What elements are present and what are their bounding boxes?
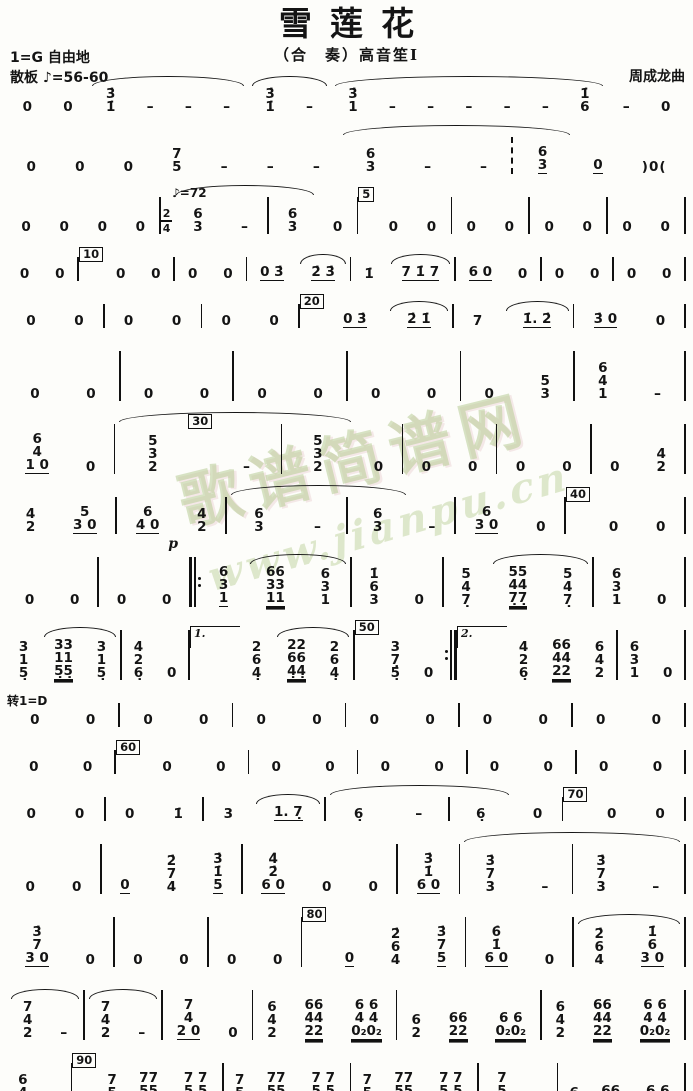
rest: 0: [318, 221, 356, 234]
rest: 0: [530, 221, 568, 234]
rest: 0: [542, 268, 577, 281]
slur-group: 22664̣4̣264̣: [273, 639, 353, 680]
note-stack: 7 75 50₄0₄: [297, 1072, 350, 1091]
note-stack: 641 0: [7, 433, 67, 474]
note-stack: 663311: [248, 566, 303, 607]
barline: [684, 257, 686, 281]
note-stack: 0 3̇: [324, 313, 386, 328]
note-stack: 55447̣7̣: [491, 566, 546, 607]
note-stack: 1̇: [154, 808, 202, 821]
barline: [684, 497, 686, 534]
note-stack: 63: [348, 508, 408, 534]
note-stack: 64: [558, 1087, 590, 1091]
notation-system: 4253 064 0p4263–63–63 004000: [0, 482, 693, 536]
note-stack: 6 60₂0₂: [482, 1012, 541, 1040]
slur-group: 3̇1̇–––: [88, 88, 247, 114]
notation-system: 00075–––63––630)0(: [0, 122, 693, 176]
rest: 0: [140, 761, 194, 774]
note-stack: 315̣: [7, 641, 40, 680]
measure-number-box: 80: [302, 907, 326, 922]
rest: 0: [649, 268, 684, 281]
note-stack: 631: [303, 568, 348, 607]
slur-group: 1̇. 2̇: [502, 313, 573, 328]
rest: 0: [249, 761, 303, 774]
rest: 0: [202, 315, 250, 328]
rest: 0: [568, 221, 606, 234]
rest: 0: [138, 268, 173, 281]
rest: 0: [577, 268, 612, 281]
note-stack: 3̇1: [333, 88, 374, 114]
rest: 0: [54, 881, 101, 894]
measure-number-box: 60: [116, 740, 140, 755]
rest: 0: [104, 161, 153, 174]
score-body: 003̇1̇–––3̇1̇–3̇1–––––1̇6–000075–––63––6…: [0, 65, 693, 1091]
rest: 0: [176, 714, 232, 727]
rest: 0: [517, 521, 564, 534]
rest: 0: [234, 388, 290, 401]
notation-system: 742–742–742 006426644226 64 40₂0₂6266226…: [0, 975, 693, 1042]
rest: 0: [7, 161, 56, 174]
note-stack: 742 0: [163, 999, 214, 1040]
slur-group: 63–63: [227, 497, 409, 534]
rest: 0: [468, 761, 522, 774]
rest: 0: [115, 954, 161, 967]
rest: 0: [194, 761, 248, 774]
measure-number-box: 5: [358, 187, 374, 202]
rest: 0: [289, 714, 345, 727]
rest: 0: [631, 761, 685, 774]
barline: [684, 797, 686, 821]
slur-group: 742–: [85, 1001, 161, 1040]
note-stack: 631: [618, 641, 651, 680]
barline: [684, 630, 686, 680]
rest: 0: [153, 315, 201, 328]
note-stack: 264̣: [318, 641, 351, 680]
rest: 0: [48, 101, 89, 114]
barline: [301, 917, 303, 967]
rest: 0: [63, 388, 119, 401]
rest: 0: [67, 954, 113, 967]
note-stack: 2̇ 3̇: [298, 266, 347, 281]
rest: 0: [303, 881, 350, 894]
dash-continuation: –: [400, 161, 456, 174]
rest: 0: [105, 315, 153, 328]
dash-continuation: –: [373, 101, 411, 114]
note-stack: 6̣: [450, 808, 511, 821]
barline: [684, 990, 686, 1040]
note-stack: 775533: [383, 1072, 424, 1091]
rest: 0: [120, 714, 176, 727]
dash-continuation: –: [201, 161, 247, 174]
dash-continuation: –: [456, 161, 512, 174]
rest: 0: [42, 268, 77, 281]
notation-system: 000024♪=7263–630500000000: [0, 182, 693, 236]
dash-continuation: –: [212, 461, 280, 474]
notation-system: 3̇73 0000008002̇643̇756̇1̇6 002̇641̇63 0: [0, 902, 693, 969]
note-stack: 4̇2̇6 0: [243, 853, 304, 894]
rest: 0: [144, 594, 189, 607]
rest: 0: [7, 388, 63, 401]
note-stack: 775533: [128, 1072, 169, 1091]
dash-continuation: –: [389, 808, 448, 821]
dash-continuation: –: [46, 1027, 81, 1040]
barline: [357, 197, 359, 234]
rest: 0: [61, 761, 115, 774]
slur-group: 7 1̇ 7: [387, 266, 454, 281]
barline: [684, 917, 686, 967]
dash-continuation: –: [222, 221, 267, 234]
note-stack: 2̇ 1̇: [388, 313, 450, 328]
note-stack: 6644: [590, 1085, 631, 1091]
rest: 0: [374, 221, 412, 234]
note-stack: 6 60₄0₄: [631, 1085, 684, 1091]
rest: 0: [7, 315, 55, 328]
rest: 0: [7, 594, 52, 607]
measure-number-box: 30: [188, 414, 212, 429]
measure-number-box: 50: [355, 620, 379, 635]
note-stack: 7 75 50₃0₃: [169, 1072, 222, 1091]
note-stack: 664422: [579, 999, 626, 1040]
barline: [684, 750, 686, 774]
note-stack: 664422: [291, 999, 338, 1040]
barline: [564, 497, 566, 534]
rest: 0: [250, 315, 298, 328]
rest: 0: [587, 808, 635, 821]
rest: 0: [102, 879, 149, 894]
note-stack: 63: [229, 508, 289, 534]
rest: 0: [629, 714, 685, 727]
rest: 0: [403, 461, 449, 474]
dash-continuation: –: [207, 101, 245, 114]
rest: 0: [505, 268, 540, 281]
slur-group: 33115̣5̣315̣: [40, 639, 120, 680]
dash-continuation: –: [247, 161, 293, 174]
repeat-end-barline: [445, 630, 457, 680]
rest: 0: [461, 388, 517, 401]
note-stack: 532: [117, 435, 188, 474]
rest: 0: [412, 761, 466, 774]
note-stack: 426̣: [122, 641, 155, 680]
rest: 0: [83, 221, 121, 234]
rest: 0: [177, 388, 233, 401]
rest: 0: [106, 808, 154, 821]
note-stack: 1̇. 2̇: [504, 313, 571, 328]
note-stack: 6622: [435, 1012, 482, 1040]
rest: 0: [7, 268, 42, 281]
rest: 0: [350, 881, 397, 894]
slur-group: 2̇641̇63 0: [574, 926, 684, 967]
slur-group: 663311631: [246, 566, 350, 607]
slur-group: 2̇ 3̇: [296, 266, 349, 281]
note-stack: 547̣: [444, 568, 489, 607]
note-stack: 3̇ 0: [574, 313, 636, 328]
score-header: 雪莲花 （合 奏）高音笙Ⅰ 1=G 自由地 散板 ♪=56-60 周成龙曲: [0, 0, 693, 65]
rest: 0: [326, 952, 372, 967]
rest: 0: [402, 714, 458, 727]
rest: 0: [121, 388, 177, 401]
note-stack: 642: [583, 641, 616, 680]
rest: 0: [209, 954, 255, 967]
rest: 0: [515, 714, 571, 727]
dash-continuation: –: [410, 521, 455, 534]
note-stack: 631: [594, 568, 639, 607]
rest: 0: [155, 667, 188, 680]
note-stack: 63: [174, 208, 222, 234]
notation-system: 0002̇743̇1̇54̇2̇6 0003̇1̇6 03̇73–3̇73–: [0, 829, 693, 896]
rest: 0: [214, 1027, 251, 1040]
rest: 0: [7, 101, 48, 114]
barline: [684, 1063, 686, 1091]
note-stack: 3̇1̇5: [195, 853, 242, 894]
rest: 0: [255, 954, 301, 967]
note-stack: 1̇63: [352, 568, 397, 607]
rest: 0: [7, 761, 61, 774]
rest: 0: [103, 268, 138, 281]
barline: [684, 557, 686, 607]
slur-group: 1. 7̣: [252, 806, 324, 821]
note-stack: 631: [201, 566, 246, 607]
rest: 0: [55, 808, 103, 821]
note-stack: 6 64 40₂0₂: [337, 999, 396, 1040]
dash-continuation: –: [488, 101, 526, 114]
note-stack: 62: [397, 1014, 434, 1040]
slur-group: 55447̣7̣547̣: [489, 566, 593, 607]
rest: 0: [7, 221, 45, 234]
rest: 0: [355, 461, 401, 474]
note-stack: 63: [513, 146, 571, 174]
volta-bracket: 1.: [190, 626, 240, 648]
rest: 0: [358, 761, 412, 774]
note-stack: 7 1̇ 7: [389, 266, 452, 281]
rest: 0: [526, 954, 572, 967]
rest: 0: [412, 221, 450, 234]
slur-group: 742–: [7, 1001, 83, 1040]
rest: 0: [544, 461, 590, 474]
dash-continuation: –: [450, 101, 488, 114]
rest: 0: [55, 315, 103, 328]
note-stack: 532: [282, 435, 353, 474]
rest: 0: [346, 714, 402, 727]
note-stack: 42: [638, 448, 684, 474]
note-stack: 753 0: [479, 1072, 525, 1091]
rest: 0: [67, 461, 113, 474]
rest: 0: [573, 714, 629, 727]
measure-number-box: 10: [79, 247, 103, 262]
note-stack: 775544: [256, 1072, 297, 1091]
notation-system: 0001̇31. 7̣6̣–6̣07000: [0, 782, 693, 823]
note-stack: 1̇: [351, 268, 386, 281]
dash-continuation: –: [289, 521, 346, 534]
rest: 0: [161, 954, 207, 967]
dash-continuation: –: [124, 1027, 159, 1040]
note-stack: 7 75 50₃0₃: [424, 1072, 477, 1091]
note-stack: 63: [341, 148, 399, 174]
note-stack: 742: [87, 1001, 124, 1040]
rest: 0: [636, 315, 684, 328]
rest: 0: [63, 714, 119, 727]
dash-continuation: –: [131, 101, 169, 114]
rest: 0: [452, 221, 490, 234]
slur-group: 3̇1̇–: [248, 88, 331, 114]
note-stack: 33115̣5̣: [42, 639, 85, 680]
note-stack: 642: [7, 1074, 39, 1091]
dash-continuation: –: [607, 101, 645, 114]
rest: 0: [651, 667, 684, 680]
rest: 0: [614, 268, 649, 281]
time-signature: 24: [161, 208, 172, 235]
note-stack: 264̣: [240, 641, 273, 680]
note-stack: 53 0: [54, 506, 115, 534]
rest: 0: [590, 521, 637, 534]
dash-continuation: –: [629, 881, 682, 894]
note-stack: 742: [9, 1001, 46, 1040]
rest: 0: [637, 521, 684, 534]
rest: 0: [397, 594, 442, 607]
note-stack: 3̇75: [419, 926, 465, 967]
rest: 0: [348, 388, 404, 401]
note-stack: 642: [542, 1001, 579, 1040]
note-stack: 42: [178, 508, 225, 534]
repeat-start-barline: [189, 557, 201, 607]
note-stack: 547̣: [545, 568, 590, 607]
rest: 0: [577, 761, 631, 774]
slur-group: 53230–532: [115, 424, 355, 474]
rest: 0: [175, 268, 210, 281]
note-stack: 3̇1̇: [250, 88, 291, 114]
note-stack: 315̣: [85, 641, 118, 680]
note-stack: 6 64 40₂0₂: [626, 999, 685, 1040]
dash-continuation: –: [631, 388, 685, 401]
barline: [684, 703, 686, 727]
rest: 0: [45, 221, 83, 234]
notation-system: 转1=D000000000000: [0, 688, 693, 729]
note-stack: 6̣: [328, 808, 389, 821]
notation-system: 001000000 3̇2̇ 3̇1̇7 1̇ 76 000000: [0, 242, 693, 283]
slur-group: 2̇ 1̇: [386, 313, 452, 328]
note-stack: 3̇73: [462, 855, 518, 894]
measure-number-box: 90: [72, 1053, 96, 1068]
note-stack: 53: [517, 375, 573, 401]
dash-continuation: –: [293, 161, 339, 174]
rest: 0: [636, 808, 684, 821]
barline: [353, 630, 355, 680]
rest: 0: [7, 881, 54, 894]
dash-continuation: –: [526, 101, 564, 114]
note-stack: 754: [224, 1074, 256, 1091]
measure-number-box: 40: [566, 487, 590, 502]
note-stack: 642: [253, 1001, 290, 1040]
slur-group: 3̇1–––––1̇6: [331, 88, 608, 114]
notation-system: 00600000000000: [0, 735, 693, 776]
slur-group: 63––63: [339, 137, 573, 174]
dash-continuation: –: [412, 101, 450, 114]
measure-number-box: 20: [300, 294, 324, 309]
rest: 0: [99, 594, 144, 607]
rest: 0: [574, 159, 623, 174]
rest: 0: [412, 667, 445, 680]
volta-bracket: 2.: [457, 626, 507, 648]
note-stack: 664422: [540, 639, 583, 680]
barline: [684, 197, 686, 234]
rest: 0: [646, 221, 684, 234]
note-stack: 3̇73: [573, 855, 629, 894]
note-stack: 3̇73 0: [7, 926, 67, 967]
rest: 0: [645, 101, 686, 114]
rest: 0: [460, 714, 516, 727]
note-stack: 2̇64: [576, 928, 622, 967]
note-stack: 7: [454, 315, 502, 328]
notation-system: 6420907537755337 75 50₃0₃7547755447 75 5…: [0, 1048, 693, 1091]
rest: 0: [497, 461, 543, 474]
notation-system: 000000200 3̇2̇ 1̇71̇. 2̇3̇ 00: [0, 289, 693, 330]
rest: 0: [513, 808, 561, 821]
note-stack: 2̇74: [148, 855, 195, 894]
rest: 0: [52, 594, 97, 607]
note-stack: 42: [7, 508, 54, 534]
note-stack: 641: [575, 362, 631, 401]
note-stack: 753: [351, 1074, 383, 1091]
notation-system: 00006316633116311̇630547̣55447̣7̣547̣631…: [0, 542, 693, 609]
note-stack: 63: [269, 208, 317, 234]
sheet-music-page: 雪莲花 （合 奏）高音笙Ⅰ 1=G 自由地 散板 ♪=56-60 周成龙曲 歌谱…: [0, 0, 693, 1091]
notation-system: 315̣33115̣5̣315̣426̣01.264̣22664̣4̣264̣5…: [0, 615, 693, 682]
dash-continuation: –: [290, 101, 328, 114]
rest: 0: [303, 761, 357, 774]
note-stack: 63 0: [456, 506, 517, 534]
measure-number-box: 70: [563, 787, 587, 802]
rest: 0: [233, 714, 289, 727]
note-stack: 426̣: [507, 641, 540, 680]
rest: 0: [490, 221, 528, 234]
notation-system: 003̇1̇–––3̇1̇–3̇1–––––1̇6–0: [0, 73, 693, 116]
dash-continuation: –: [518, 881, 571, 894]
slur-group: 3̇73–3̇73–: [460, 844, 684, 894]
dash-continuation: –: [169, 101, 207, 114]
note-stack: 75: [153, 148, 202, 174]
rest: 0: [639, 594, 684, 607]
slur-group: 63–63: [172, 197, 318, 234]
rest: 0: [7, 808, 55, 821]
rest: 0: [404, 388, 460, 401]
rest: 0: [608, 221, 646, 234]
rest: 0: [121, 221, 159, 234]
barline: [684, 844, 686, 894]
note-stack: 37̣5̣: [379, 641, 412, 680]
score-title: 雪莲花: [0, 6, 693, 42]
rest: 0: [7, 714, 63, 727]
barline: [684, 424, 686, 474]
note-stack: 64 0: [117, 506, 178, 534]
rest: 0: [592, 461, 638, 474]
note-stack: 3̇1̇: [90, 88, 131, 114]
rest: 0: [290, 388, 346, 401]
barline: [684, 304, 686, 328]
note-stack: 2̇64: [373, 928, 419, 967]
note-stack: 1̇63 0: [622, 926, 682, 967]
note-stack: 0 3̇: [247, 266, 296, 281]
rest: 0: [56, 161, 105, 174]
note-stack: 6̇1̇6 0: [466, 926, 526, 967]
notation-system: 00000000053641–: [0, 336, 693, 403]
breath-mark-symbol: )0(: [622, 161, 686, 174]
note-stack: 753: [96, 1074, 128, 1091]
note-stack: 3: [204, 808, 252, 821]
barline: [684, 351, 686, 401]
note-stack: 1. 7̣: [254, 806, 322, 821]
note-stack: 3̇1̇6 0: [398, 853, 459, 894]
slur-group: 6̣–6̣: [326, 797, 514, 821]
rest: 0: [210, 268, 245, 281]
